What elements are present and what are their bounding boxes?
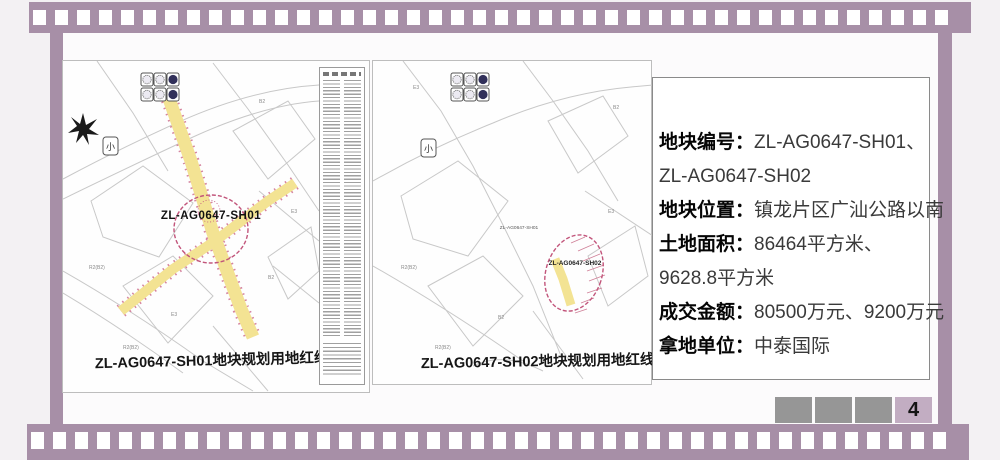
- film-perforation: [165, 10, 178, 25]
- film-perforation: [33, 10, 46, 25]
- film-perforation: [847, 10, 860, 25]
- film-perforation: [385, 10, 398, 25]
- film-perforation: [75, 432, 88, 449]
- film-perforation: [275, 10, 288, 25]
- parcel-code-label: ZL-AG0647-SH02: [549, 260, 602, 267]
- zone-label: E3: [413, 85, 419, 91]
- school-icon: 小: [103, 137, 118, 155]
- film-perforation: [869, 10, 882, 25]
- film-perforation: [823, 432, 836, 449]
- film-perforation: [891, 10, 904, 25]
- film-perforation: [77, 10, 90, 25]
- parcel-redline-ellipse: [535, 227, 612, 318]
- page-indicator-box: [855, 397, 892, 423]
- zone-label: R2(B2): [435, 345, 451, 351]
- film-perforation: [121, 10, 134, 25]
- film-perforation: [363, 10, 376, 25]
- info-line-area: 土地面积：86464平方米、: [659, 228, 925, 262]
- film-perforation: [583, 10, 596, 25]
- info-line-area-cont: 9628.8平方米: [659, 262, 925, 296]
- film-perforation: [209, 10, 222, 25]
- film-perforation: [693, 10, 706, 25]
- film-perforation: [473, 10, 486, 25]
- info-value: 86464平方米、: [754, 234, 883, 255]
- page-number: 4: [895, 397, 932, 423]
- film-perforation: [713, 432, 726, 449]
- page-indicator: 4: [775, 397, 932, 423]
- film-perforation: [647, 432, 660, 449]
- page-indicator-box: [775, 397, 812, 423]
- film-perforation: [339, 432, 352, 449]
- film-perforation: [427, 432, 440, 449]
- film-perforation: [449, 432, 462, 449]
- map-caption: ZL-AG0647-SH01地块规划用地红线图: [95, 348, 344, 372]
- info-label: 地块位置：: [659, 200, 754, 221]
- film-perforation: [53, 432, 66, 449]
- map-sh02: 小 R2(B2) R2(B2) B2 E3 B2 E3 ZL-AG0647-SH…: [372, 60, 652, 385]
- film-perforation: [867, 432, 880, 449]
- film-perforation: [737, 10, 750, 25]
- film-perforation: [273, 432, 286, 449]
- info-line-location: 地块位置：镇龙片区广汕公路以南: [659, 194, 925, 228]
- film-perforation: [759, 10, 772, 25]
- zone-label: R2(B2): [123, 345, 139, 351]
- film-perforation: [407, 10, 420, 25]
- map-sh02-drawing: 小 R2(B2) R2(B2) B2 E3 B2 E3 ZL-AG0647-SH…: [373, 61, 653, 386]
- film-perforation: [627, 10, 640, 25]
- film-perforation: [429, 10, 442, 25]
- film-perforation: [801, 432, 814, 449]
- zone-label: B2: [259, 99, 265, 105]
- info-line-parcel-code-cont: ZL-AG0647-SH02: [659, 160, 925, 194]
- film-perforation: [253, 10, 266, 25]
- film-perforation: [537, 432, 550, 449]
- film-perforation: [493, 432, 506, 449]
- film-perforation: [691, 432, 704, 449]
- parcel-code-label: ZL-AG0647-SH01: [161, 210, 261, 222]
- film-perforation: [889, 432, 902, 449]
- info-value: 9628.8平方米: [659, 268, 774, 289]
- film-perforation: [781, 10, 794, 25]
- film-perforation: [603, 432, 616, 449]
- film-perforation: [31, 432, 44, 449]
- info-value: ZL-AG0647-SH02: [659, 166, 811, 187]
- film-perforation: [163, 432, 176, 449]
- film-perforation: [97, 432, 110, 449]
- info-label: 拿地单位：: [659, 336, 754, 357]
- film-perforation: [319, 10, 332, 25]
- film-perforation: [471, 432, 484, 449]
- zone-label: R2(B2): [89, 265, 105, 271]
- film-perforation: [735, 432, 748, 449]
- map-sh01: 小 R2(B2) R2(B2) B2 E3 B2 E3 ZL-AG0647-SH…: [62, 60, 370, 393]
- slide: 小 R2(B2) R2(B2) B2 E3 B2 E3 ZL-AG0647-SH…: [0, 0, 1000, 460]
- film-perforation: [671, 10, 684, 25]
- film-perforation: [845, 432, 858, 449]
- film-strip-bottom: [27, 424, 969, 460]
- film-perforation: [297, 10, 310, 25]
- legend-stamp-icons: [451, 73, 489, 101]
- film-perforation: [187, 10, 200, 25]
- info-line-parcel-code: 地块编号：ZL-AG0647-SH01、: [659, 126, 925, 160]
- compass-icon: [68, 113, 99, 145]
- film-perforation: [405, 432, 418, 449]
- film-perforation: [669, 432, 682, 449]
- film-perforation: [913, 10, 926, 25]
- film-perforations-top: [33, 10, 967, 25]
- film-perforation: [935, 10, 948, 25]
- film-perforation: [517, 10, 530, 25]
- film-perforation: [605, 10, 618, 25]
- zone-label: B2: [498, 315, 504, 321]
- film-perforation: [207, 432, 220, 449]
- film-stripe-right: [938, 31, 952, 427]
- film-perforation: [99, 10, 112, 25]
- info-value: 80500万元、9200万元: [754, 302, 944, 323]
- svg-text:小: 小: [424, 144, 433, 154]
- film-perforation: [649, 10, 662, 25]
- film-perforation: [141, 432, 154, 449]
- film-perforation: [229, 432, 242, 449]
- film-perforation: [231, 10, 244, 25]
- film-perforation: [539, 10, 552, 25]
- legend-stamp-icons: [141, 73, 179, 101]
- school-icon: 小: [421, 139, 436, 157]
- film-perforation: [911, 432, 924, 449]
- info-line-buyer: 拿地单位：中泰国际: [659, 330, 925, 364]
- film-perforation: [559, 432, 572, 449]
- film-perforation: [119, 432, 132, 449]
- film-perforation: [495, 10, 508, 25]
- map-caption: ZL-AG0647-SH02地块规划用地红线图: [421, 350, 653, 372]
- film-perforation: [515, 432, 528, 449]
- film-perforation: [581, 432, 594, 449]
- svg-text:小: 小: [106, 142, 115, 152]
- film-perforation: [295, 432, 308, 449]
- info-label: 土地面积：: [659, 234, 754, 255]
- land-info-panel: 地块编号：ZL-AG0647-SH01、 ZL-AG0647-SH02 地块位置…: [652, 77, 930, 380]
- zone-label: E3: [608, 209, 614, 215]
- zone-label: B2: [613, 105, 619, 111]
- film-perforation: [451, 10, 464, 25]
- info-value: 镇龙片区广汕公路以南: [754, 200, 944, 221]
- info-value: ZL-AG0647-SH01、: [754, 132, 925, 153]
- page-indicator-box: [815, 397, 852, 423]
- film-perforation: [55, 10, 68, 25]
- film-perforation: [341, 10, 354, 25]
- film-perforation: [715, 10, 728, 25]
- film-perforation: [561, 10, 574, 25]
- neighbor-parcel-code-label: ZL-AG0647-SH01: [500, 225, 539, 231]
- film-perforation: [383, 432, 396, 449]
- film-perforation: [803, 10, 816, 25]
- coordinate-table: [319, 67, 365, 385]
- film-perforation: [757, 432, 770, 449]
- info-line-price: 成交金额：80500万元、9200万元: [659, 296, 925, 330]
- info-value: 中泰国际: [754, 336, 830, 357]
- zone-label: R2(B2): [401, 265, 417, 271]
- film-strip-top: [29, 2, 971, 33]
- film-perforation: [933, 432, 946, 449]
- zone-label: E3: [171, 312, 177, 318]
- zone-label: B2: [268, 275, 274, 281]
- film-perforation: [625, 432, 638, 449]
- info-label: 地块编号：: [659, 132, 754, 153]
- film-perforation: [317, 432, 330, 449]
- film-perforation: [143, 10, 156, 25]
- film-perforation: [185, 432, 198, 449]
- film-perforations-bottom: [31, 432, 965, 449]
- info-label: 成交金额：: [659, 302, 754, 323]
- film-perforation: [825, 10, 838, 25]
- zone-label: E3: [291, 209, 297, 215]
- film-perforation: [361, 432, 374, 449]
- film-perforation: [251, 432, 264, 449]
- film-perforation: [779, 432, 792, 449]
